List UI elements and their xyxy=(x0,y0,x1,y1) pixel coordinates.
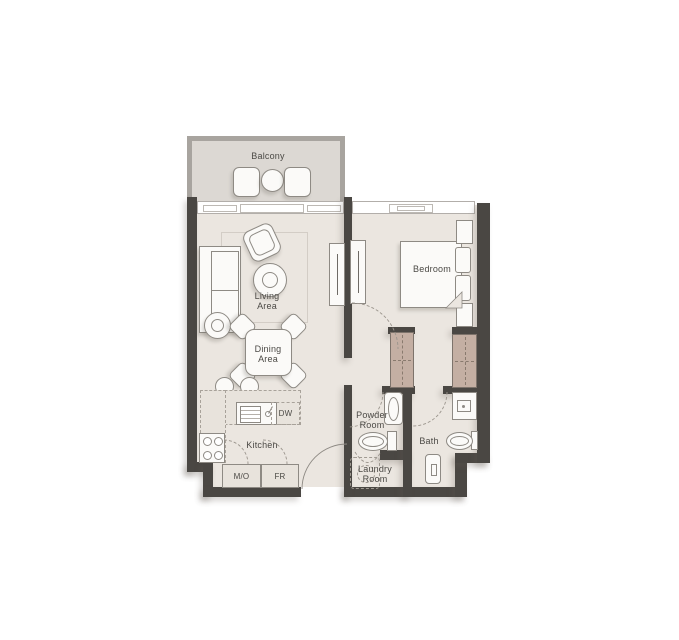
wardrobe-divider xyxy=(393,360,411,361)
fridge-label: FR xyxy=(274,472,285,481)
sink-basin xyxy=(240,406,261,423)
burner xyxy=(214,451,223,460)
dishwasher-zone: DW xyxy=(271,402,300,425)
shower-fixture xyxy=(425,454,441,484)
fridge-cabinet: FR xyxy=(261,464,299,488)
shower-control xyxy=(431,464,437,476)
stove xyxy=(199,433,225,463)
window-sliding-pane xyxy=(397,206,425,211)
balcony-label: Balcony xyxy=(251,151,284,161)
bg-patch-bottom-left xyxy=(187,472,204,497)
powder-label-line2: Room xyxy=(356,420,388,430)
nightstand-bottom xyxy=(456,303,473,327)
laundry-label-line2: Room xyxy=(358,474,392,484)
powder-toilet-tank xyxy=(387,431,397,451)
powder-room-label: Powder Room xyxy=(356,410,388,430)
wardrobe-divider xyxy=(455,361,474,362)
burner xyxy=(203,451,212,460)
bath-toilet-bowl xyxy=(446,432,473,450)
dining-area-label: Dining Area xyxy=(255,344,282,364)
window-pane xyxy=(240,204,304,213)
laundry-label-line1: Laundry xyxy=(358,464,392,474)
dining-label-line1: Dining xyxy=(255,344,282,354)
microwave-oven-cabinet: M/O xyxy=(222,464,261,488)
window-pane xyxy=(203,205,237,212)
laundry-room-label: Laundry Room xyxy=(358,464,392,484)
bath-vanity xyxy=(452,392,477,420)
window-pane xyxy=(307,205,341,212)
bedroom-label-text: Bedroom xyxy=(413,264,451,274)
bed xyxy=(400,241,462,308)
bath-vanity-drain xyxy=(462,405,465,408)
bath-toilet-seat xyxy=(450,436,469,446)
wall-right xyxy=(477,203,490,463)
door-handle xyxy=(337,254,338,295)
balcony-label-text: Balcony xyxy=(251,151,284,161)
kitchen-label-text: Kitchen xyxy=(246,440,277,450)
wall-bath-west xyxy=(403,387,412,497)
nightstand-top xyxy=(456,220,473,244)
coffee-table-inner xyxy=(262,272,278,288)
powder-basin-bowl xyxy=(388,397,399,421)
burner xyxy=(203,437,212,446)
burner xyxy=(214,437,223,446)
window-bedroom xyxy=(352,201,475,214)
bath-label: Bath xyxy=(419,436,438,446)
wall-bottom-a xyxy=(203,487,301,497)
powder-toilet-seat xyxy=(362,436,384,447)
living-area-label: Living Area xyxy=(255,291,280,311)
living-label-line1: Living xyxy=(255,291,280,301)
dishwasher-label: DW xyxy=(279,409,293,418)
kitchen-label: Kitchen xyxy=(246,440,277,450)
wall-left xyxy=(187,197,197,472)
sliding-panel-living-side xyxy=(329,243,345,306)
floor-plan: DW M/O FR xyxy=(0,0,679,640)
balcony-chair-left xyxy=(233,167,260,197)
wall-closet-b-north xyxy=(452,327,477,334)
side-table xyxy=(204,312,231,339)
side-table-inner xyxy=(211,319,224,332)
balcony-table xyxy=(261,169,284,192)
wardrobe-left xyxy=(390,332,414,388)
bath-label-text: Bath xyxy=(419,436,438,446)
window-living xyxy=(197,201,344,214)
powder-toilet-bowl xyxy=(358,432,388,451)
sliding-panel-bedroom-side xyxy=(350,240,366,304)
pillow xyxy=(455,247,471,273)
dining-label-line2: Area xyxy=(255,354,282,364)
bedroom-label: Bedroom xyxy=(413,264,451,274)
balcony-structure xyxy=(187,136,345,202)
wardrobe-right xyxy=(452,334,477,388)
living-label-line2: Area xyxy=(255,301,280,311)
pillow xyxy=(455,275,471,301)
door-handle xyxy=(358,251,359,293)
powder-label-line1: Powder xyxy=(356,410,388,420)
armchair-seat xyxy=(247,227,277,257)
balcony-chair-right xyxy=(284,167,311,197)
microwave-oven-label: M/O xyxy=(234,472,250,481)
